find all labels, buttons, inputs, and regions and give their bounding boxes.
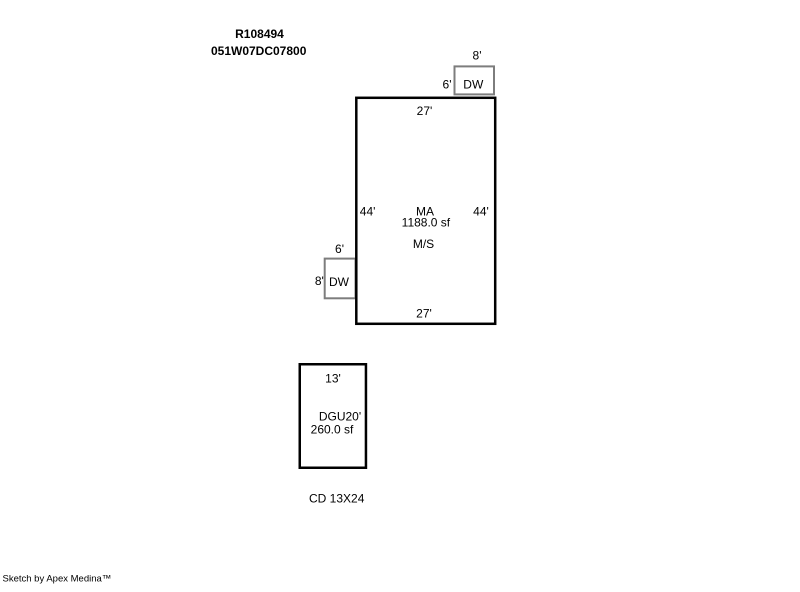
- svg-text:6': 6': [335, 242, 344, 256]
- svg-text:27': 27': [417, 104, 433, 118]
- svg-text:DW: DW: [463, 78, 484, 92]
- svg-text:Sketch by Apex Medina™: Sketch by Apex Medina™: [3, 574, 112, 585]
- svg-text:8': 8': [315, 274, 324, 288]
- svg-text:6': 6': [443, 78, 452, 92]
- svg-text:44': 44': [360, 205, 376, 219]
- svg-text:051W07DC07800: 051W07DC07800: [211, 44, 307, 58]
- svg-text:13': 13': [325, 371, 341, 385]
- svg-text:8': 8': [473, 49, 482, 63]
- svg-text:27': 27': [416, 307, 432, 321]
- svg-text:1188.0 sf: 1188.0 sf: [402, 216, 451, 230]
- svg-text:DW: DW: [329, 275, 350, 289]
- svg-text:260.0 sf: 260.0 sf: [311, 422, 354, 436]
- svg-text:CD 13X24: CD 13X24: [309, 491, 365, 505]
- svg-text:44': 44': [473, 205, 489, 219]
- svg-text:M/S: M/S: [413, 237, 434, 251]
- svg-text:R108494: R108494: [235, 27, 284, 41]
